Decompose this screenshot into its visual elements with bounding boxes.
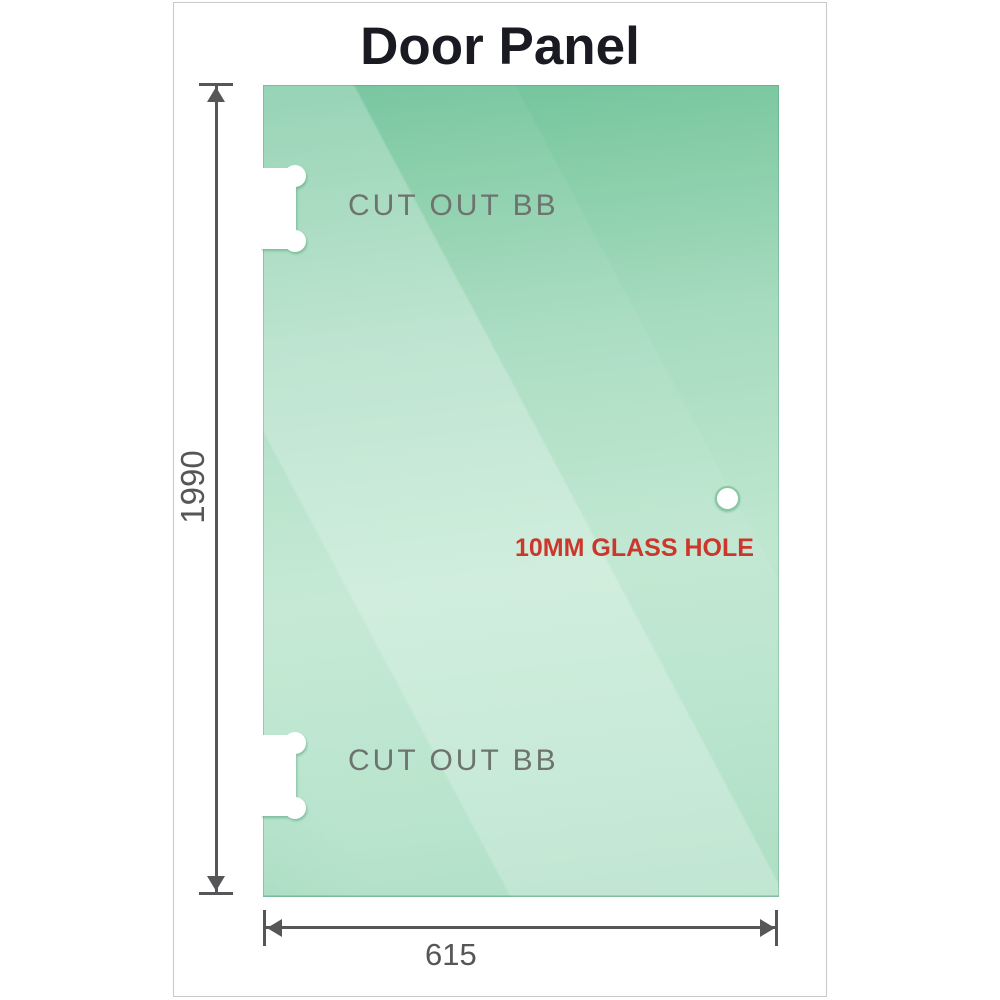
arrow-up-icon: [207, 87, 225, 102]
height-dimension-line: [215, 86, 218, 894]
width-dimension-cap-left: [263, 910, 266, 946]
width-dimension-cap-right: [775, 910, 778, 946]
arrow-right-icon: [760, 919, 775, 937]
height-dimension-cap-bottom: [199, 892, 233, 895]
diagram-canvas: Door Panel CUT OUT BB CUT OUT BB: [0, 0, 1000, 1000]
page-title: Door Panel: [173, 16, 827, 77]
hinge-cutout-top-shape: [261, 161, 309, 257]
height-dimension-cap-top: [199, 83, 233, 86]
arrow-left-icon: [267, 919, 282, 937]
width-dimension-line: [265, 926, 777, 929]
glass-hole-shape: [715, 486, 740, 511]
hinge-cutout-bottom-shape: [261, 728, 309, 824]
width-dimension-value: 615: [425, 937, 477, 973]
cutout-bottom-label: CUT OUT BB: [348, 744, 559, 778]
glass-door-panel: CUT OUT BB CUT OUT BB 10MM GLASS HOLE: [263, 85, 779, 897]
height-dimension-value: 1990: [177, 450, 209, 524]
arrow-down-icon: [207, 876, 225, 891]
glass-hole-label: 10MM GLASS HOLE: [515, 534, 754, 563]
cutout-top-label: CUT OUT BB: [348, 189, 559, 223]
